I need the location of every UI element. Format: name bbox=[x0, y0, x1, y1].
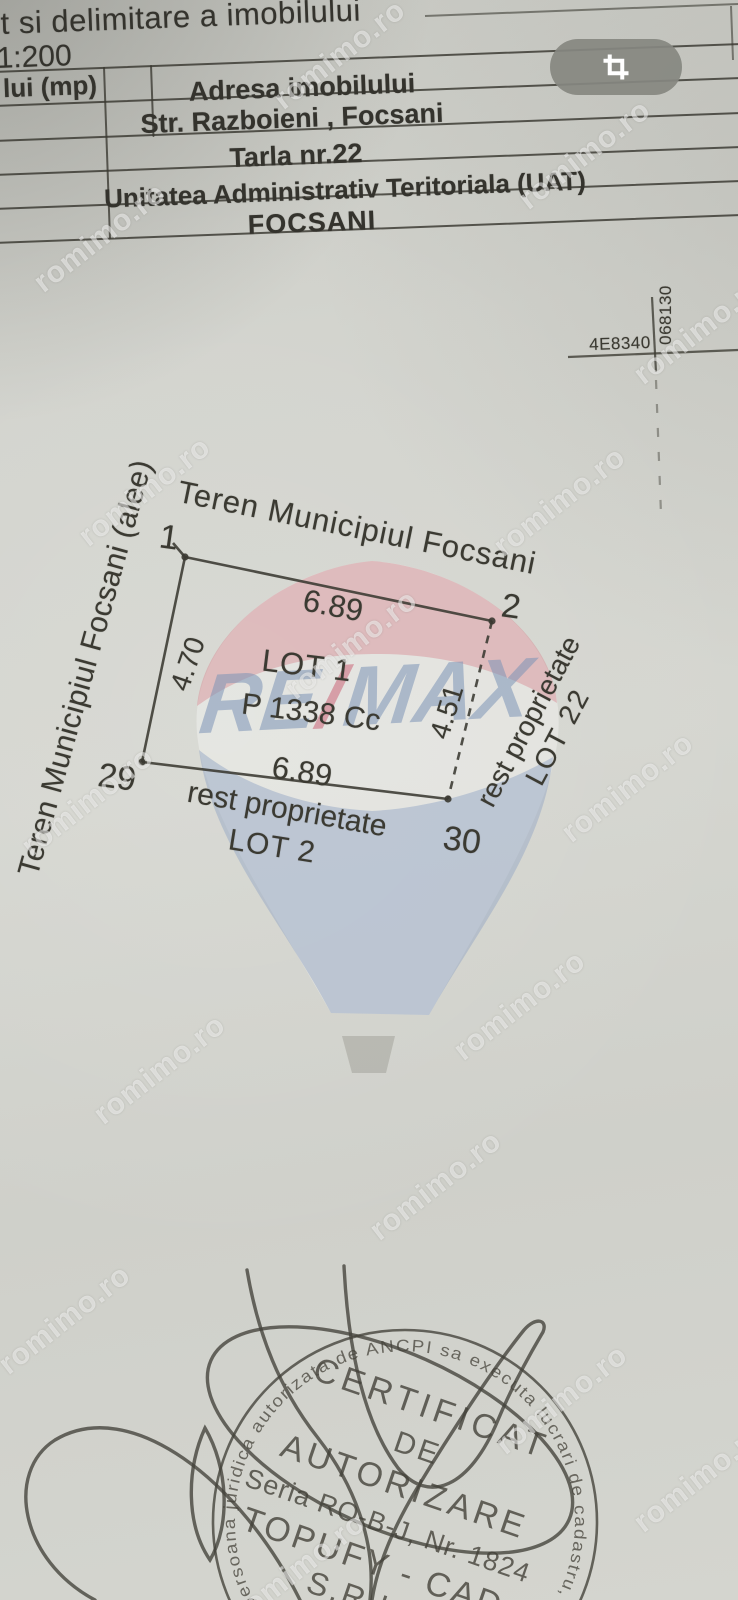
table-cell-tarla: Tarla nr.22 bbox=[229, 138, 363, 174]
balloon-basket bbox=[342, 1036, 395, 1073]
grid-easting-label: 4E8340 bbox=[589, 333, 651, 355]
parcel-point-30: 30 bbox=[441, 819, 484, 863]
crop-icon bbox=[601, 52, 631, 82]
table-cell-area-header-fragment: lui (mp) bbox=[3, 70, 98, 104]
table-cell-uat-value: FOCSANI bbox=[247, 205, 377, 241]
crop-button[interactable] bbox=[550, 39, 682, 95]
photo-viewer: persoana juridica autorizata de ANCPI sa… bbox=[0, 0, 738, 1600]
